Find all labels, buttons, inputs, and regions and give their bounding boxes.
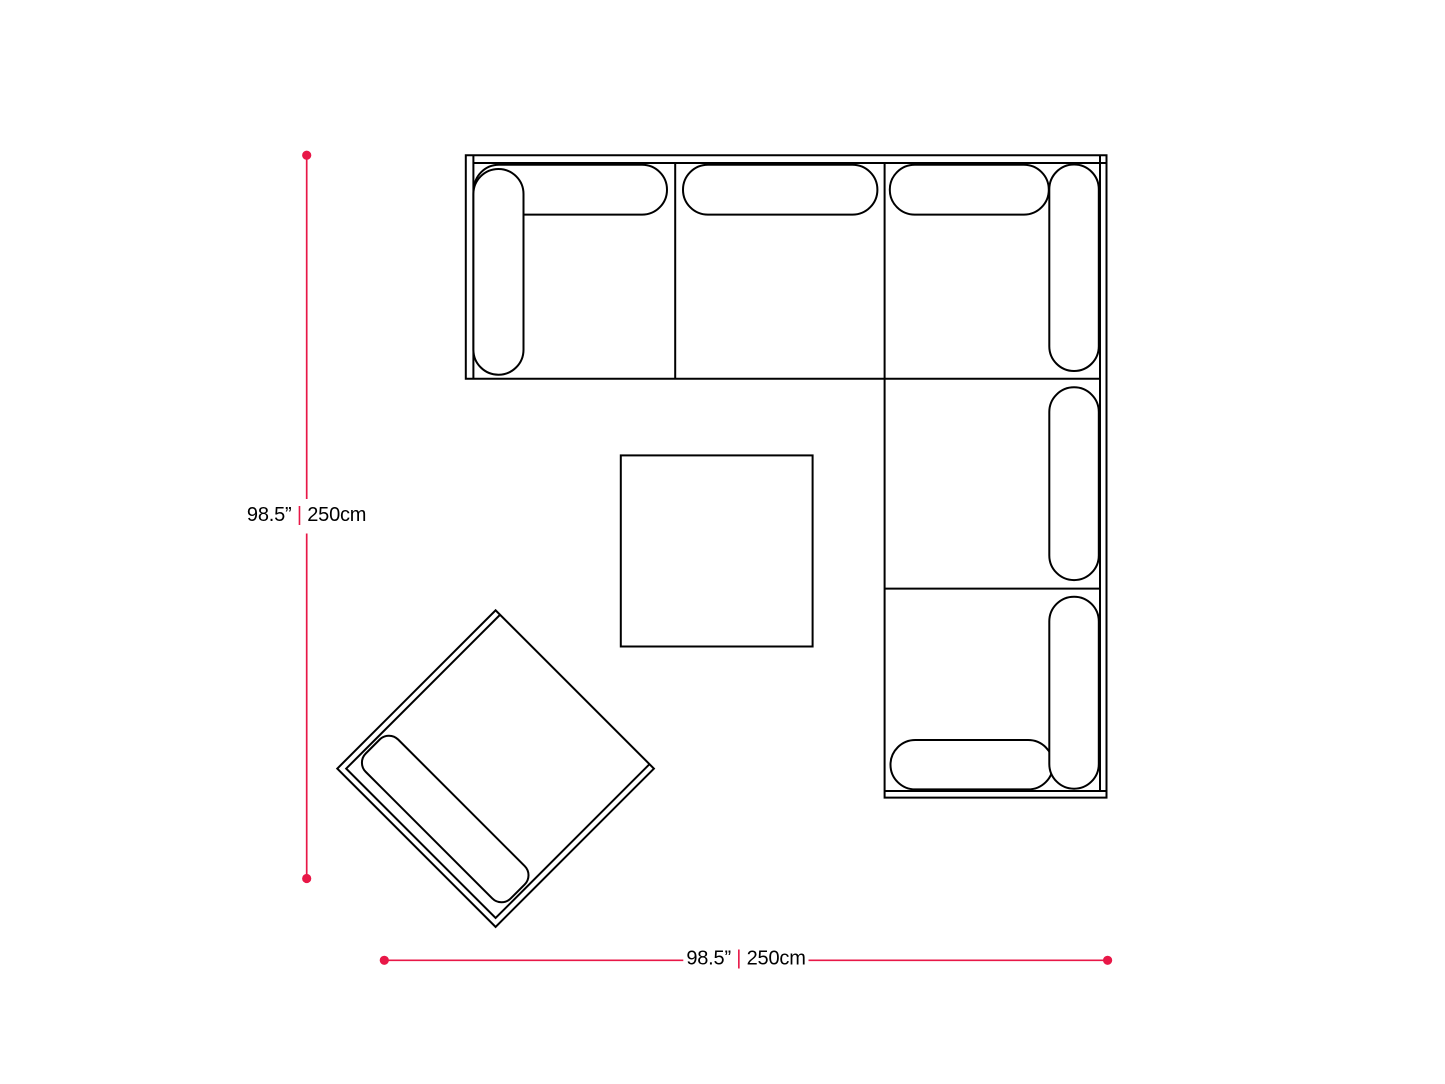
svg-text:98.5” | 250cm: 98.5” | 250cm [686, 947, 805, 969]
svg-text:98.5” | 250cm: 98.5” | 250cm [247, 504, 366, 526]
